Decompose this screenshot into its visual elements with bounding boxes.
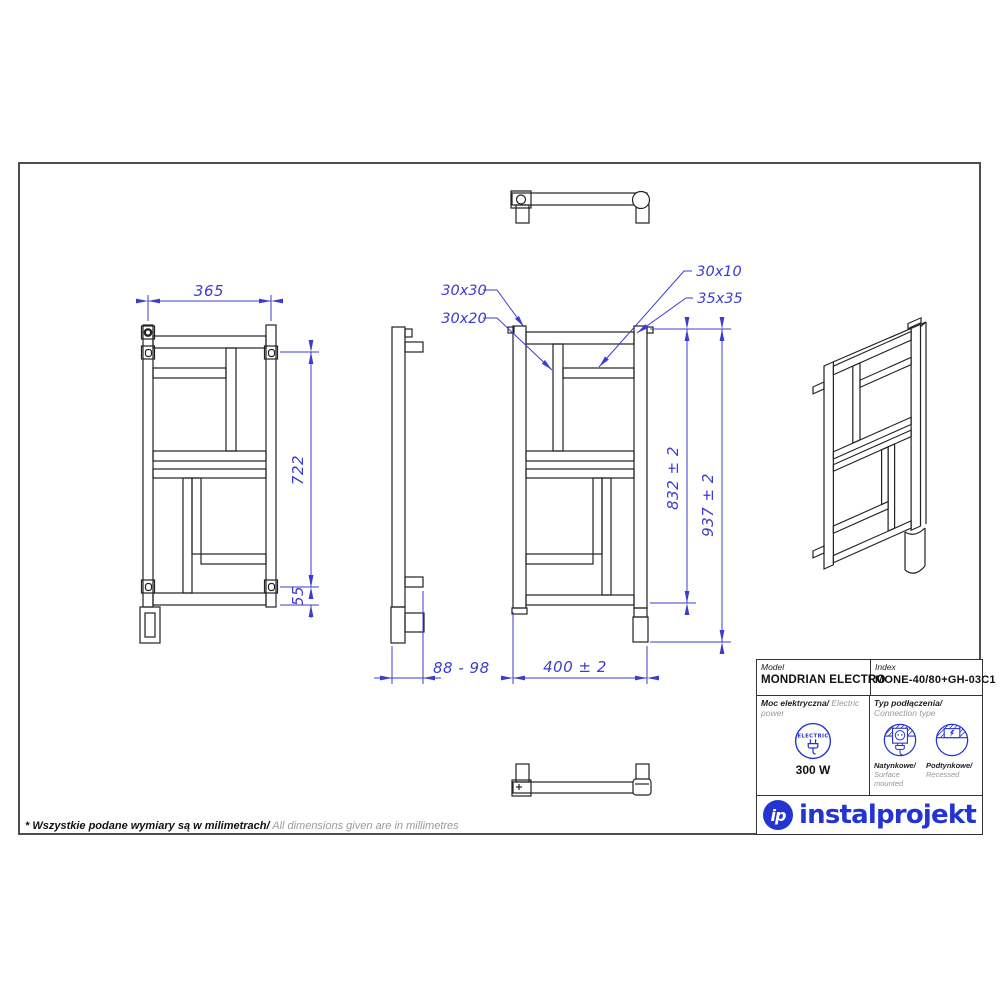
dim-depth-range: 88 - 98 (433, 659, 490, 677)
title-block: Model MONDRIAN ELECTRO Index MONE-40/80+… (756, 659, 983, 835)
callout-30x30: 30x30 (441, 283, 486, 299)
dim-height-937: 937 ± 2 (699, 473, 717, 537)
dimensions-note: * Wszystkie podane wymiary są w milimetr… (25, 820, 459, 832)
profile-callouts (483, 271, 693, 370)
heating-element (634, 608, 647, 617)
callout-35x35: 35x35 (697, 291, 742, 307)
brand-wordmark: instalprojekt (799, 800, 976, 830)
connection-cell: Typ podłączenia/ Connection type (870, 696, 982, 795)
brand-logo-icon: ip (763, 800, 793, 830)
svg-text:ELECTRIC: ELECTRIC (797, 734, 828, 740)
heating-element (905, 528, 925, 573)
title-block-row-specs: Moc elektryczna/ Electric power ELECTRIC… (757, 696, 982, 796)
wall-bracket (516, 764, 529, 782)
index-cell: Index MONE-40/80+GH-03C1 (871, 660, 1000, 695)
electric-icon: ELECTRIC (793, 721, 833, 761)
dim-height-832: 832 ± 2 (664, 446, 682, 510)
wall-bracket (405, 342, 423, 352)
dim-offset-55: 55 (289, 586, 307, 606)
top-view (511, 191, 650, 223)
callout-30x10: 30x10 (696, 264, 741, 280)
back-view (140, 325, 278, 643)
index-value: MONE-40/80+GH-03C1 (875, 674, 996, 686)
heating-element (391, 607, 405, 643)
dim-height-722: 722 (289, 455, 307, 485)
dimension-depth (374, 591, 441, 684)
power-cell: Moc elektryczna/ Electric power ELECTRIC… (757, 696, 870, 795)
recessed-icon (934, 722, 970, 758)
model-value: MONDRIAN ELECTRO (761, 674, 866, 686)
power-value: 300 W (796, 763, 831, 777)
connection-label: Typ podłączenia/ Connection type (874, 698, 978, 718)
side-view (391, 327, 424, 643)
surface-mounted-icon (882, 722, 918, 758)
title-block-row-model: Model MONDRIAN ELECTRO Index MONE-40/80+… (757, 660, 982, 696)
front-view (508, 326, 653, 642)
model-label: Model (761, 662, 866, 672)
drawing-sheet: 365 722 55 88 - 98 (0, 0, 1000, 1000)
bottom-view (512, 764, 651, 796)
brand-row: ip instalprojekt (757, 796, 982, 834)
callout-30x20: 30x20 (441, 311, 486, 327)
dim-width-365: 365 (194, 282, 224, 300)
surface-mounted-option: Natynkowe/ Surface mounted (874, 722, 926, 788)
technical-drawing: 365 722 55 88 - 98 (0, 0, 1000, 1000)
isometric-view (813, 318, 926, 574)
wall-bracket (405, 577, 423, 587)
model-cell: Model MONDRIAN ELECTRO (757, 660, 871, 695)
power-label: Moc elektryczna/ Electric power (761, 698, 865, 718)
recessed-option: Podtynkowe/ Recessed (926, 722, 978, 788)
dim-width-400: 400 ± 2 (543, 658, 607, 676)
index-label: Index (875, 662, 996, 672)
